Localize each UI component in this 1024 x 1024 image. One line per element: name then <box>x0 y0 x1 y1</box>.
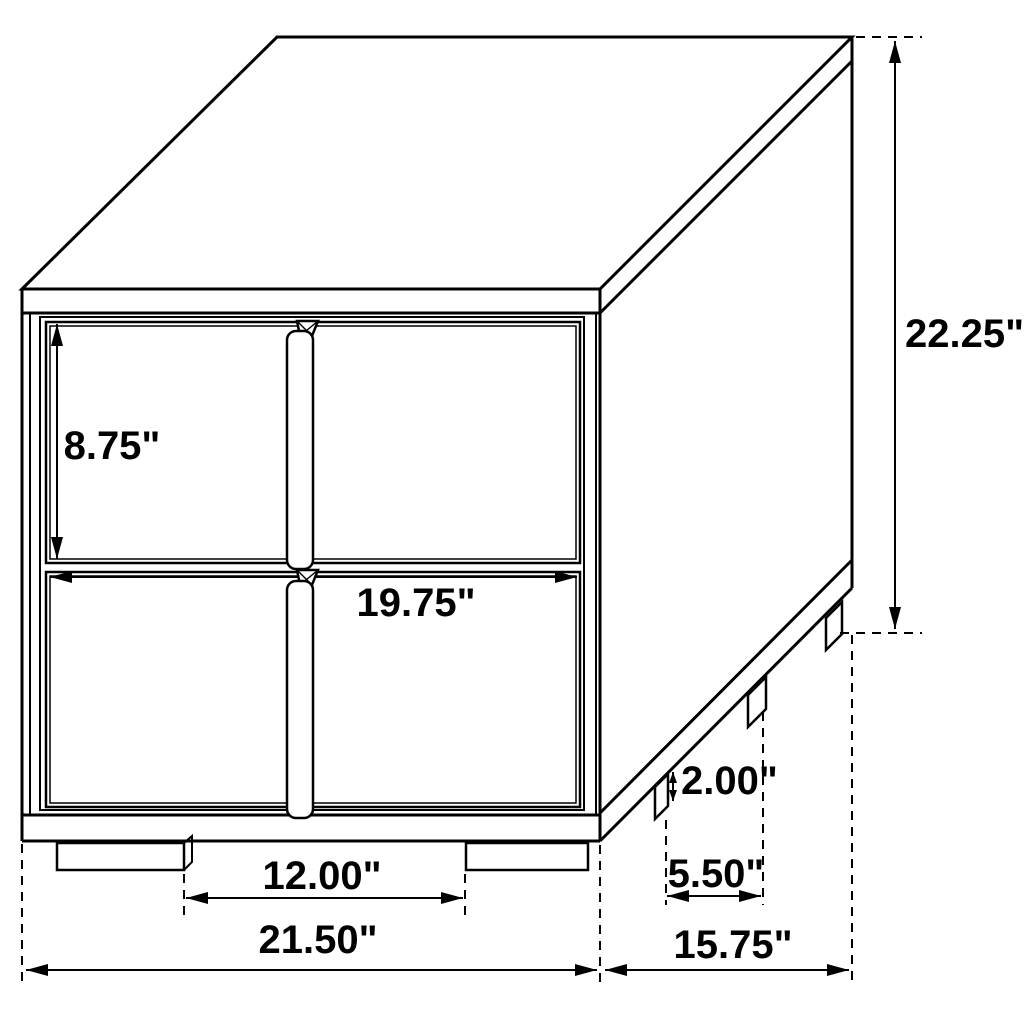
dim-label-leg-height: 2.00" <box>681 759 778 803</box>
nightstand-dimension-drawing: 8.75" 19.75" 22.25" 2.00" 5.50" 12.00" 2… <box>0 0 1024 1024</box>
dim-label-overall-width: 21.50" <box>258 918 377 962</box>
top-drawer-handle <box>287 331 313 569</box>
front-left-leg <box>57 843 184 870</box>
dim-label-side-leg-span: 5.50" <box>668 852 765 896</box>
side-base-rail-bottom-edge <box>600 588 852 841</box>
front-right-leg <box>466 843 588 870</box>
bottom-drawer-handle <box>287 581 313 818</box>
dim-label-drawer-height: 8.75" <box>64 424 161 468</box>
dim-label-front-leg-span: 12.00" <box>262 854 381 898</box>
top-panel <box>22 37 852 289</box>
dim-label-overall-depth: 15.75" <box>673 923 792 967</box>
top-panel-side-edge <box>600 61 852 313</box>
side-back-leg <box>826 602 842 650</box>
dim-label-drawer-width: 19.75" <box>356 581 475 625</box>
legs <box>57 602 842 870</box>
dim-label-overall-height: 22.25" <box>905 312 1024 356</box>
drawer-handles <box>287 321 318 818</box>
side-front-leg <box>655 774 668 819</box>
dimension-diagram-page: 8.75" 19.75" 22.25" 2.00" 5.50" 12.00" 2… <box>0 0 1024 1024</box>
